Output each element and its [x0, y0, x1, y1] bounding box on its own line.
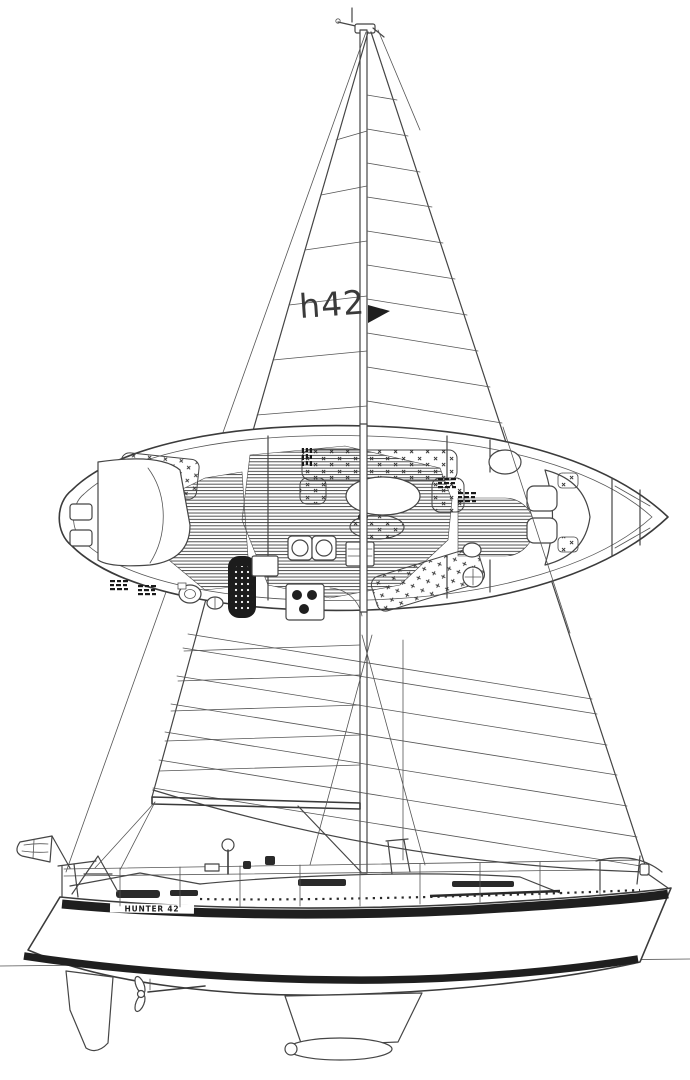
stbd-settee-left: [300, 478, 326, 504]
aft-berth: [98, 459, 190, 566]
helm-pedestal: [205, 839, 234, 874]
halyard: [378, 30, 420, 130]
cabin-window: [116, 890, 160, 898]
hunter42-lineart: h42: [0, 0, 690, 1080]
bow-pulpit: [596, 856, 668, 890]
cabin-window: [298, 879, 346, 886]
toilet-icon: [463, 543, 481, 557]
counter: [252, 556, 278, 576]
stern-flag-icon: [17, 836, 70, 868]
mast-pennant-icon: [368, 305, 390, 323]
fwd-berth-cushion: [527, 486, 557, 511]
winch-icon: [265, 856, 275, 865]
furler-drum-icon: [640, 864, 649, 875]
keel-bulb-nose: [285, 1043, 297, 1055]
stove: [286, 584, 324, 620]
hull-profile: HUNTER 42: [17, 836, 671, 995]
vent-grille: [110, 580, 128, 590]
vent-grille: [302, 448, 312, 466]
stern-hatch: [70, 504, 92, 520]
cabin-window: [170, 890, 198, 896]
hull-name-text: HUNTER 42: [125, 905, 180, 914]
stbd-settee-cushion: [302, 450, 457, 480]
saloon-table: [346, 477, 420, 515]
keel-bulb: [288, 1038, 392, 1060]
sail-logo-text: h42: [298, 282, 366, 326]
fwd-wardrobe: [489, 450, 521, 474]
vent-grille: [458, 492, 476, 502]
boom: [95, 635, 425, 872]
sailboat-drawing: h42: [0, 0, 690, 1080]
winch-icon: [243, 861, 251, 869]
rudder: [66, 971, 113, 1051]
stern-hatch: [70, 530, 92, 546]
vent-grille: [438, 478, 456, 488]
cabin-window: [452, 881, 514, 887]
vent-grille: [138, 585, 156, 595]
sprayhood-frame: [386, 839, 410, 874]
mainsail: h42: [152, 32, 390, 797]
fwd-berth-cushion: [527, 518, 557, 543]
ottoman: [350, 515, 404, 539]
